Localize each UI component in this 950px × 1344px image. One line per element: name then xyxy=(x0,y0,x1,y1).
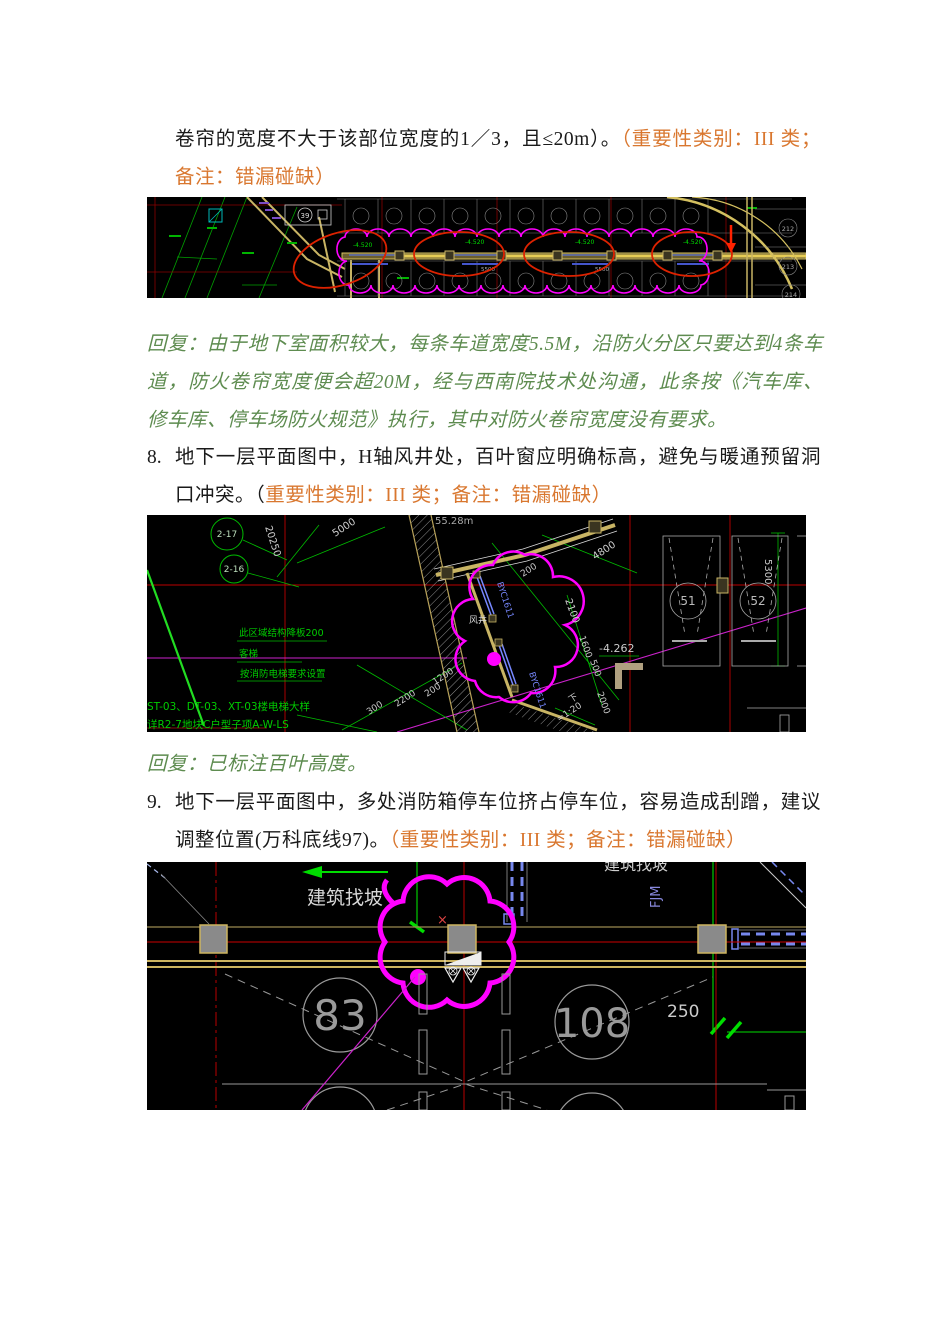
item8-paragraph: 地下一层平面图中，H轴风井处，百叶窗应明确标高，避免与暖通预留洞口冲突。（重要性… xyxy=(175,439,821,515)
grid-bubble-label-1: 2-17 xyxy=(217,530,237,540)
slope-note: 建筑找坡 xyxy=(307,887,383,909)
magenta-dot xyxy=(410,969,426,985)
duct-label: FJM xyxy=(649,885,664,908)
dim-250: 250 xyxy=(667,1002,699,1022)
stall-52: 52 xyxy=(750,594,765,608)
svg-text:ST-03、DT-03、XT-03楼电梯大样: ST-03、DT-03、XT-03楼电梯大样 xyxy=(147,700,310,713)
item9-paragraph: 地下一层平面图中，多处消防箱停车位挤占停车位，容易造成刮蹭，建议调整位置(万科底… xyxy=(175,784,821,860)
cad-image-parking-hydrant[interactable]: 建筑找坡 建筑找坡 FJM xyxy=(147,862,806,1110)
stall-83: 83 xyxy=(313,991,366,1040)
level-label: -4.262 xyxy=(599,642,634,655)
cad-image-wind-shaft-detail[interactable]: 2-17 2-16 BYC1611 BYC1611 xyxy=(147,515,806,732)
svg-text:客梯: 客梯 xyxy=(239,648,259,660)
svg-text:此区域结构降板200: 此区域结构降板200 xyxy=(239,627,324,639)
document-page: 卷帘的宽度不大于该部位宽度的1／3，且≤20m）。（重要性类别：III 类；备注… xyxy=(0,0,950,1344)
svg-text:-4.520: -4.520 xyxy=(683,239,703,246)
svg-text:213: 213 xyxy=(782,263,794,271)
top-cut-note: 建筑找坡 xyxy=(604,862,668,874)
stall-108: 108 xyxy=(554,1001,630,1047)
item7-continuation-paragraph: 卷帘的宽度不大于该部位宽度的1／3，且≤20m）。（重要性类别：III 类；备注… xyxy=(175,121,821,197)
grid-bubble-label-2: 2-16 xyxy=(224,565,245,575)
item8-number: 8. xyxy=(147,439,173,477)
legend-number: 39 xyxy=(301,212,310,220)
svg-text:-4.520: -4.520 xyxy=(353,242,373,249)
svg-text:5300: 5300 xyxy=(762,559,773,584)
magenta-dot xyxy=(487,652,501,666)
stall-column xyxy=(717,578,728,593)
cad-image-fire-shutter-plan[interactable]: 39 xyxy=(147,197,806,298)
svg-text:详R2-7地块C户型子项A-W-LS: 详R2-7地块C户型子项A-W-LS xyxy=(147,718,289,731)
svg-text:-4.520: -4.520 xyxy=(575,239,595,246)
item9-text-orange: （重要性类别：III 类；备注：错漏碰缺） xyxy=(390,830,747,851)
reply2-paragraph: 回复：已标注百叶高度。 xyxy=(147,746,823,784)
svg-text:214: 214 xyxy=(785,291,797,298)
svg-text:212: 212 xyxy=(782,225,794,233)
stall-51: 51 xyxy=(680,594,695,608)
svg-text:-4.520: -4.520 xyxy=(465,239,485,246)
reply1-paragraph: 回复：由于地下室面积较大，每条车道宽度5.5M，沿防火分区只要达到4条车道，防火… xyxy=(147,326,823,440)
svg-text:按消防电梯要求设置: 按消防电梯要求设置 xyxy=(240,668,326,680)
item8-text-orange: 重要性类别：III 类；备注：错漏碰缺） xyxy=(265,485,611,506)
area-label: 55.28m xyxy=(435,516,473,527)
shaft-name: 风井 xyxy=(469,614,487,626)
item7-text-black: 卷帘的宽度不大于该部位宽度的1／3，且≤20m）。 xyxy=(175,129,621,150)
item9-number: 9. xyxy=(147,784,173,822)
cross-mark: × xyxy=(437,913,448,928)
